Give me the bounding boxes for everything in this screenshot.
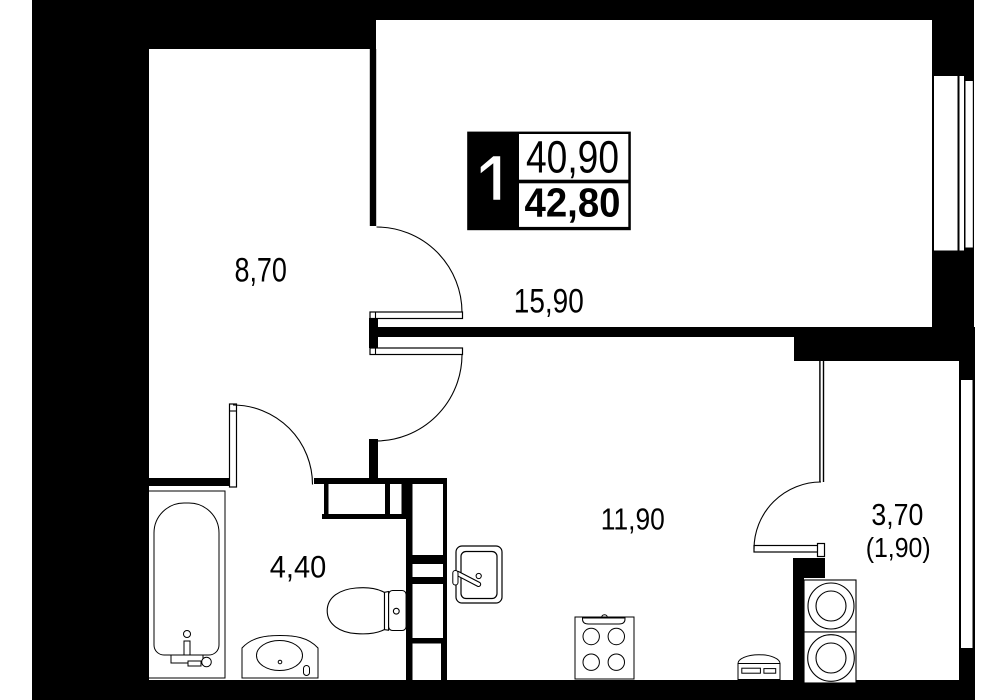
svg-text:40,90: 40,90: [526, 132, 619, 183]
svg-text:4,40: 4,40: [270, 549, 327, 585]
svg-text:(1,90): (1,90): [866, 532, 931, 563]
svg-text:42,80: 42,80: [525, 180, 621, 226]
svg-text:11,90: 11,90: [601, 503, 665, 536]
svg-text:3,70: 3,70: [871, 499, 923, 532]
svg-text:15,90: 15,90: [514, 283, 584, 321]
svg-text:8,70: 8,70: [234, 252, 287, 290]
